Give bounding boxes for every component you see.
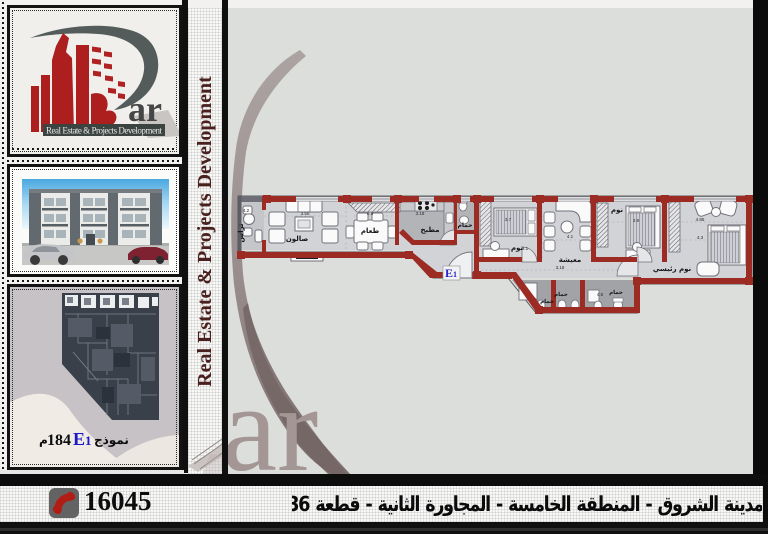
svg-text:9.8: 9.8 (367, 211, 374, 216)
svg-text:4.2: 4.2 (243, 208, 250, 213)
svg-text:4.85: 4.85 (696, 217, 705, 222)
svg-text:3.18: 3.18 (556, 265, 565, 270)
svg-text:4.5: 4.5 (597, 292, 604, 297)
svg-text:3.18: 3.18 (416, 211, 425, 216)
svg-text:3.9: 3.9 (633, 218, 640, 223)
svg-text:3.1: 3.1 (522, 246, 529, 251)
svg-text:3.50: 3.50 (301, 211, 310, 216)
svg-text:3.7: 3.7 (505, 217, 512, 222)
svg-text:4.3: 4.3 (697, 235, 704, 240)
svg-text:4.1: 4.1 (567, 234, 574, 239)
